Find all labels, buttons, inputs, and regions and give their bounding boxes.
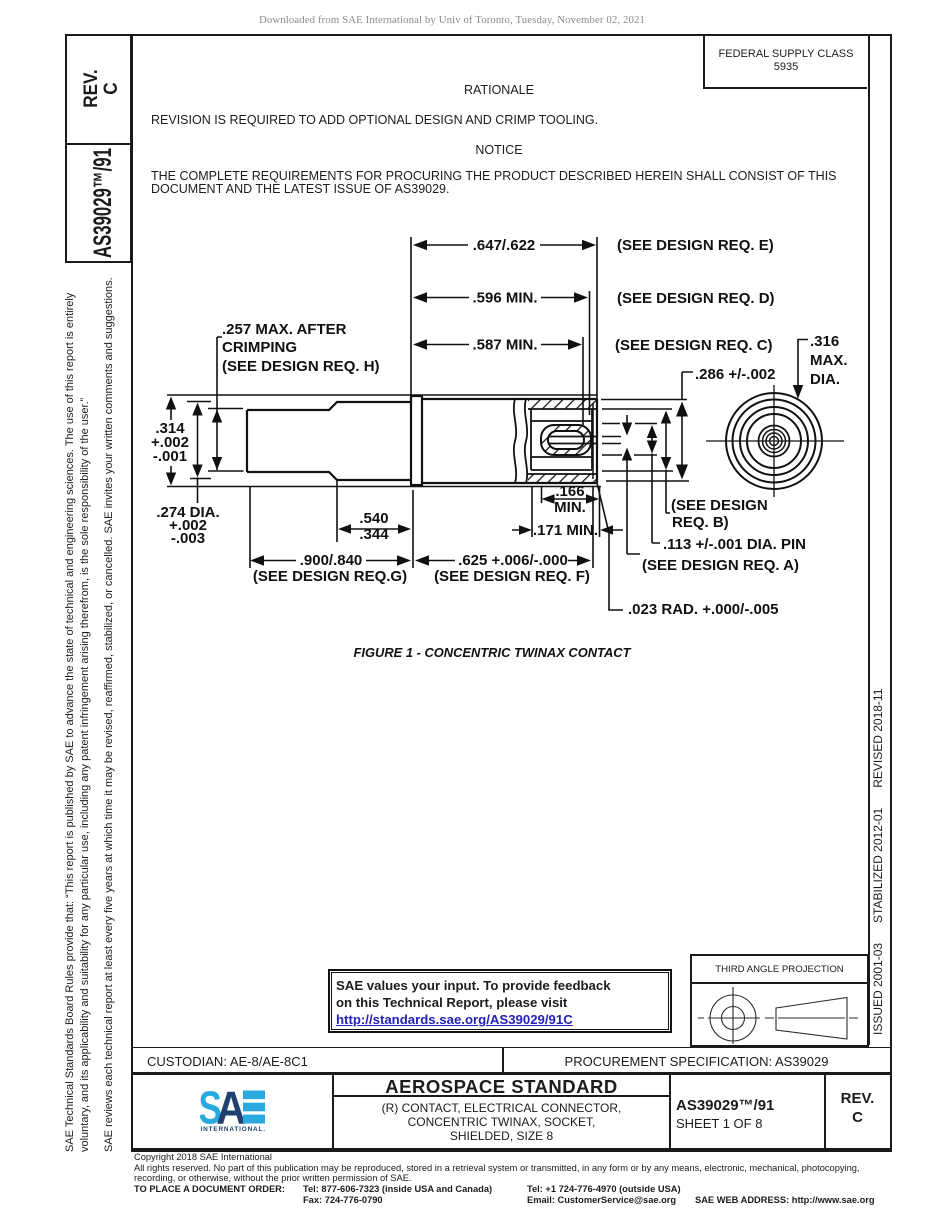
svg-text:.023 RAD. +.000/-.005: .023 RAD. +.000/-.005	[628, 601, 779, 618]
svg-text:(SEE DESIGN REQ. H): (SEE DESIGN REQ. H)	[222, 358, 380, 375]
svg-text:(SEE DESIGN REQ.G): (SEE DESIGN REQ.G)	[253, 568, 407, 585]
svg-text:(SEE DESIGN REQ. A): (SEE DESIGN REQ. A)	[642, 557, 799, 574]
svg-text:.587 MIN.: .587 MIN.	[472, 337, 537, 354]
svg-text:.625 +.006/-.000: .625 +.006/-.000	[458, 552, 568, 569]
svg-text:.596 MIN.: .596 MIN.	[472, 290, 537, 307]
svg-text:(SEE DESIGN REQ. C): (SEE DESIGN REQ. C)	[615, 337, 773, 354]
svg-text:.257 MAX. AFTER: .257 MAX. AFTER	[222, 321, 347, 338]
svg-text:.316: .316	[810, 333, 839, 350]
svg-text:.647/.622: .647/.622	[473, 237, 536, 254]
svg-text:.113 +/-.001 DIA. PIN: .113 +/-.001 DIA. PIN	[663, 536, 806, 553]
svg-text:(SEE DESIGN REQ. F): (SEE DESIGN REQ. F)	[434, 568, 590, 585]
svg-text:(SEE DESIGN REQ. D): (SEE DESIGN REQ. D)	[617, 290, 775, 307]
svg-text:.286 +/-.002: .286 +/-.002	[695, 366, 775, 383]
svg-text:CRIMPING: CRIMPING	[222, 339, 297, 356]
svg-text:.166: .166	[555, 483, 584, 500]
svg-text:-.003: -.003	[171, 530, 205, 547]
svg-text:.900/.840: .900/.840	[300, 552, 363, 569]
svg-text:-.001: -.001	[153, 448, 187, 465]
svg-text:.171 MIN.: .171 MIN.	[533, 522, 598, 539]
svg-text:REQ. B): REQ. B)	[672, 514, 729, 531]
svg-text:(SEE DESIGN: (SEE DESIGN	[671, 497, 768, 514]
svg-text:(SEE DESIGN REQ. E): (SEE DESIGN REQ. E)	[617, 237, 774, 254]
svg-text:MAX.: MAX.	[810, 352, 848, 369]
svg-text:.540: .540	[359, 510, 388, 527]
svg-text:MIN.: MIN.	[554, 499, 586, 516]
svg-text:INTERNATIONAL.: INTERNATIONAL.	[201, 1126, 266, 1133]
svg-text:DIA.: DIA.	[810, 371, 840, 388]
svg-text:FIGURE 1 - CONCENTRIC TWINAX C: FIGURE 1 - CONCENTRIC TWINAX CONTACT	[354, 645, 632, 660]
svg-text:.344: .344	[359, 526, 389, 543]
